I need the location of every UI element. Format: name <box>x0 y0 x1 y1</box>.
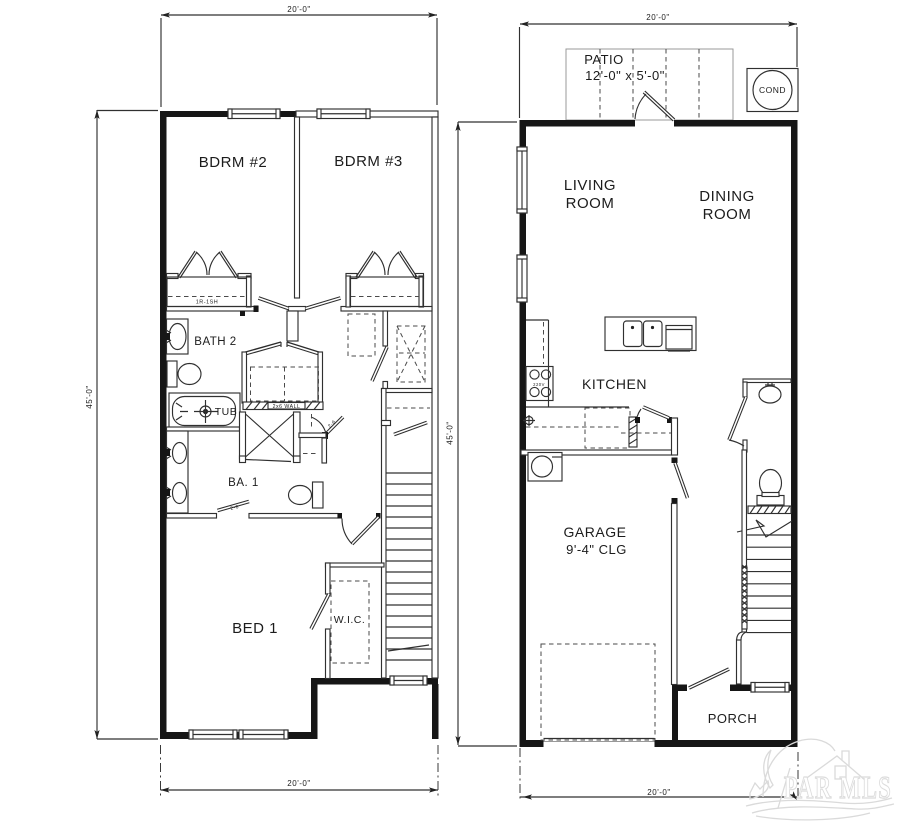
svg-text:ROOM: ROOM <box>566 195 615 212</box>
svg-text:BED 1: BED 1 <box>232 620 278 637</box>
svg-text:TUB: TUB <box>215 406 238 418</box>
svg-text:DINING: DINING <box>699 188 755 205</box>
svg-text:BA. 1: BA. 1 <box>228 477 259 489</box>
svg-text:BATH 2: BATH 2 <box>194 336 236 348</box>
svg-text:BDRM #3: BDRM #3 <box>334 153 403 170</box>
svg-text:9'-4" CLG: 9'-4" CLG <box>566 542 627 557</box>
svg-text:12'-0" x 5'-0": 12'-0" x 5'-0" <box>585 68 665 83</box>
svg-text:ROOM: ROOM <box>703 206 752 223</box>
svg-text:20'-0": 20'-0" <box>287 779 310 788</box>
svg-text:45'-0": 45'-0" <box>446 421 455 444</box>
svg-text:2x6 WALL: 2x6 WALL <box>273 404 301 410</box>
svg-text:20'-0": 20'-0" <box>646 13 669 22</box>
svg-text:20'-0": 20'-0" <box>287 5 310 14</box>
svg-text:20'-0": 20'-0" <box>647 788 670 797</box>
svg-text:GARAGE: GARAGE <box>564 524 627 540</box>
svg-text:220V: 220V <box>533 382 545 387</box>
svg-text:PATIO: PATIO <box>584 52 624 67</box>
svg-text:1R-1SH: 1R-1SH <box>196 300 219 306</box>
svg-text:W.I.C.: W.I.C. <box>334 614 366 626</box>
svg-text:KITCHEN: KITCHEN <box>582 376 647 392</box>
svg-text:BDRM #2: BDRM #2 <box>199 154 268 171</box>
svg-text:PAR MLS: PAR MLS <box>784 769 892 805</box>
svg-text:COND: COND <box>759 85 786 95</box>
svg-text:45'-0": 45'-0" <box>85 385 94 408</box>
svg-text:PORCH: PORCH <box>708 711 757 726</box>
svg-text:LIVING: LIVING <box>564 177 616 194</box>
